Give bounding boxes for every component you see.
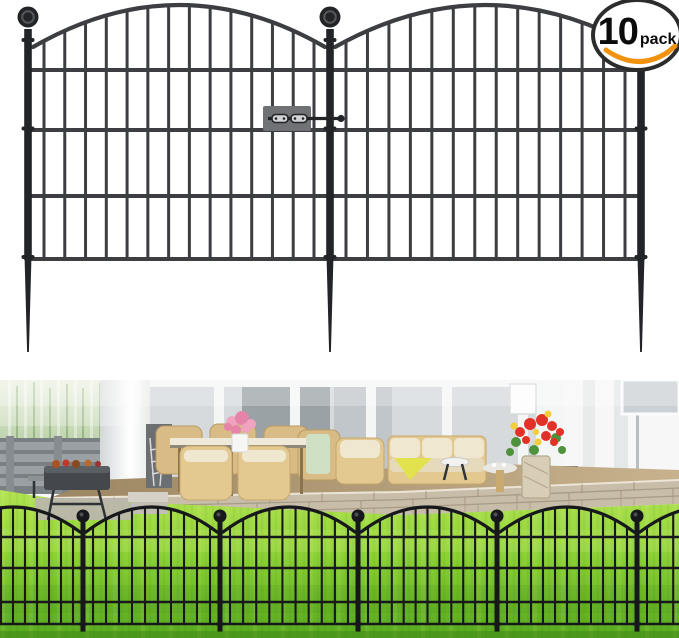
grass-fringe: [0, 631, 679, 638]
product-image: 10 pack: [0, 0, 679, 638]
chaise-cushion: [306, 434, 330, 474]
fence-post: [320, 7, 341, 353]
fence-panels-drawing: [0, 0, 679, 380]
installation-photo: [0, 380, 679, 638]
product-line-drawing: 10 pack: [0, 0, 679, 380]
concrete-steps: [128, 492, 168, 514]
patio-scene: [0, 380, 679, 638]
pack-count-badge: 10 pack: [591, 0, 679, 72]
fence-post: [18, 7, 39, 353]
coffee-table: [441, 458, 469, 467]
amazon-smile-icon: [600, 44, 679, 70]
